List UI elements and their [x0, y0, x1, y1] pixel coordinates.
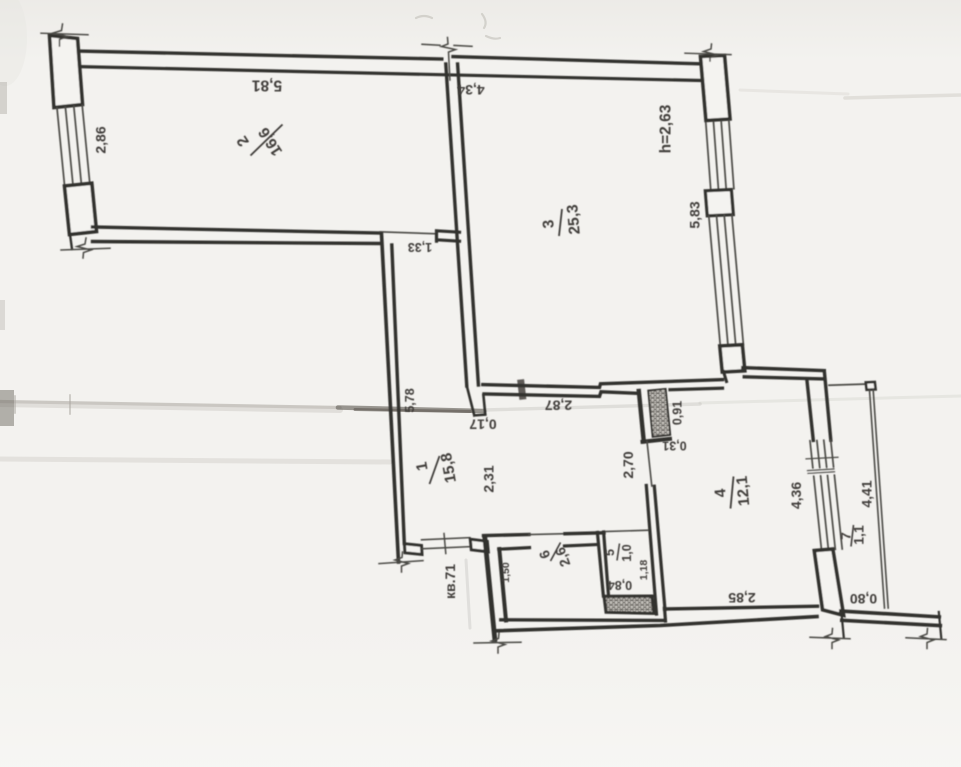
svg-text:2,87: 2,87 [545, 398, 572, 414]
svg-text:1,50: 1,50 [500, 562, 512, 583]
svg-text:5,83: 5,83 [686, 201, 702, 228]
svg-text:0,31: 0,31 [662, 439, 686, 453]
svg-text:12,1: 12,1 [734, 475, 754, 507]
svg-text:4,41: 4,41 [858, 480, 874, 507]
svg-text:2,31: 2,31 [481, 465, 497, 492]
svg-text:0,80: 0,80 [850, 591, 877, 607]
svg-text:1,33: 1,33 [408, 240, 432, 254]
svg-text:1,18: 1,18 [638, 560, 650, 581]
svg-text:4,36: 4,36 [788, 482, 804, 509]
svg-text:2,70: 2,70 [620, 451, 636, 478]
svg-text:0,84: 0,84 [608, 578, 632, 592]
svg-text:0,17: 0,17 [469, 417, 496, 433]
svg-text:2,86: 2,86 [92, 126, 108, 153]
svg-text:5: 5 [603, 549, 617, 556]
svg-text:0,91: 0,91 [670, 401, 684, 425]
svg-text:5,78: 5,78 [403, 388, 417, 412]
svg-text:h=2,63: h=2,63 [657, 104, 674, 153]
svg-text:4,34: 4,34 [457, 82, 484, 98]
svg-text:5,81: 5,81 [252, 77, 283, 94]
svg-text:1,0: 1,0 [620, 544, 634, 561]
svg-text:25,3: 25,3 [564, 203, 584, 235]
svg-text:1,1: 1,1 [850, 525, 866, 545]
svg-text:кв.71: кв.71 [442, 564, 458, 599]
svg-text:2,85: 2,85 [728, 590, 755, 606]
